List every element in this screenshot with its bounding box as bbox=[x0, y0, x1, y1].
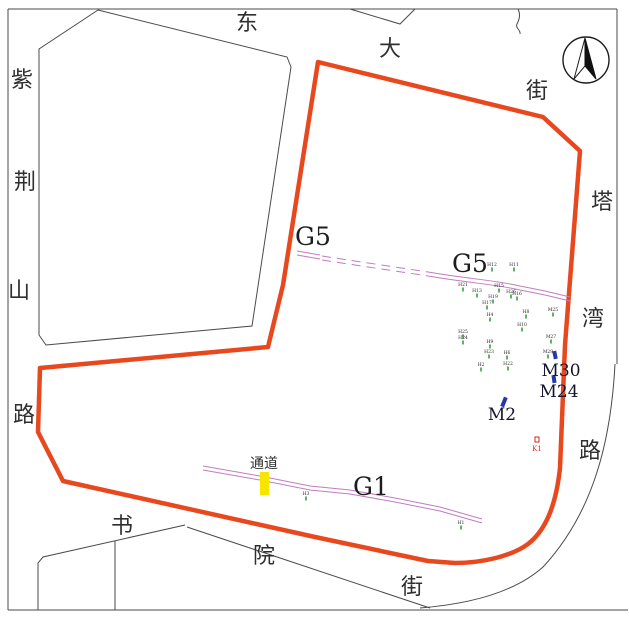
street-right-char: 塔 bbox=[591, 190, 613, 215]
trench-g5-seg bbox=[297, 251, 320, 255]
feature-marker-label: H17 bbox=[482, 300, 492, 306]
feature-marker-label: H15 bbox=[494, 283, 504, 289]
feature-marker-label: H22 bbox=[503, 361, 513, 367]
trench-g5-seg bbox=[297, 255, 320, 259]
building-block-topleft bbox=[39, 10, 291, 345]
trench-g1-line bbox=[203, 466, 482, 523]
feature-marker-tick bbox=[489, 345, 491, 349]
feature-marker-tick bbox=[498, 289, 500, 293]
street-bottom-char: 院 bbox=[253, 544, 275, 569]
trench-g5-label-left: G5 bbox=[295, 222, 331, 251]
street-bottom-char: 街 bbox=[401, 575, 423, 600]
north-arrow-icon bbox=[563, 37, 609, 83]
feature-marker-tick bbox=[305, 497, 307, 501]
compass-needle-left bbox=[574, 38, 585, 79]
feature-marker-tick bbox=[460, 526, 462, 530]
feature-marker-label: H11 bbox=[509, 262, 519, 268]
feature-marker-label: H16 bbox=[512, 291, 522, 297]
road-stub-top bbox=[517, 9, 521, 34]
trench-g5-dashed-seg bbox=[322, 260, 428, 276]
feature-marker-label: H24 bbox=[458, 335, 468, 341]
trench-g1-seg bbox=[203, 470, 482, 523]
feature-marker-label: M27 bbox=[546, 334, 556, 340]
feature-marker-label: H19 bbox=[488, 294, 498, 300]
feature-marker-tick bbox=[486, 306, 488, 310]
street-right-char: 湾 bbox=[582, 307, 604, 332]
feature-marker-tick bbox=[513, 268, 515, 272]
feature-marker-label: M25 bbox=[548, 307, 558, 313]
feature-marker-label: H23 bbox=[484, 349, 494, 355]
feature-marker-label: H3 bbox=[303, 491, 310, 497]
feature-marker-tick bbox=[462, 288, 464, 292]
feature-marker-tick bbox=[547, 355, 549, 359]
feature-marker-tick bbox=[516, 297, 518, 301]
street-left-char: 路 bbox=[13, 403, 35, 428]
feature-marker-tick bbox=[507, 367, 509, 371]
feature-marker-label: H4 bbox=[487, 312, 494, 318]
feature-marker-tick bbox=[552, 313, 554, 317]
trench-g1-label: G1 bbox=[353, 472, 389, 501]
trench-g5-line bbox=[297, 251, 570, 301]
site-map: 通道 G5 G5 G1 M30 M24 M2 K1 东 大 街 紫 荆 山 路 … bbox=[0, 0, 629, 618]
feature-marker-label: H12 bbox=[487, 262, 497, 268]
feature-marker-tick bbox=[525, 315, 527, 319]
passage-label: 通道 bbox=[250, 456, 278, 472]
feature-marker-label: H25 bbox=[458, 329, 468, 335]
tomb-m30-label: M30 bbox=[541, 361, 580, 381]
feature-marker-tick bbox=[488, 355, 490, 359]
feature-marker-label: H1 bbox=[458, 520, 465, 526]
feature-marker-tick bbox=[521, 328, 523, 332]
feature-marker-label: H9 bbox=[487, 339, 494, 345]
street-top-char: 街 bbox=[526, 79, 548, 104]
tomb-m2-label: M2 bbox=[488, 405, 516, 425]
feature-marker-label: M29 bbox=[543, 349, 553, 355]
street-left-char: 山 bbox=[8, 279, 30, 304]
building-edge-topright bbox=[350, 9, 415, 24]
feature-marker-tick bbox=[462, 341, 464, 345]
site-map-canvas: 通道 G5 G5 G1 M30 M24 M2 K1 东 大 街 紫 荆 山 路 … bbox=[0, 0, 629, 618]
tomb-m24-label: M24 bbox=[539, 382, 578, 402]
kiln-k1-marker bbox=[535, 437, 539, 442]
feature-marker-tick bbox=[491, 268, 493, 272]
feature-marker-label: H21 bbox=[458, 282, 468, 288]
feature-marker-label: H2 bbox=[478, 362, 485, 368]
trench-g5-label-mid: G5 bbox=[452, 249, 488, 278]
feature-marker-label: H13 bbox=[472, 288, 482, 294]
street-left-char: 荆 bbox=[14, 170, 36, 195]
compass-needle-right bbox=[585, 38, 596, 79]
street-right-char: 路 bbox=[579, 439, 601, 464]
feature-marker-label: H6 bbox=[504, 350, 511, 356]
feature-marker-tick bbox=[550, 340, 552, 344]
feature-marker-label: H10 bbox=[517, 322, 527, 328]
street-south-edge bbox=[187, 527, 430, 608]
excavation-boundary-outline bbox=[38, 62, 580, 563]
street-left-char: 紫 bbox=[11, 68, 33, 93]
feature-marker-tick bbox=[476, 294, 478, 298]
passage-marker bbox=[260, 472, 269, 495]
trench-g5-dashed-seg bbox=[322, 256, 428, 272]
feature-marker-label: H8 bbox=[523, 309, 530, 315]
feature-marker-tick bbox=[480, 368, 482, 372]
road-curve-bottomright bbox=[420, 364, 615, 608]
street-top-char: 东 bbox=[236, 11, 258, 36]
feature-marker-tick bbox=[506, 356, 508, 360]
street-bottom-char: 书 bbox=[111, 514, 133, 539]
feature-marker-tick bbox=[489, 318, 491, 322]
feature-marker-tick bbox=[492, 300, 494, 304]
kiln-k1-label: K1 bbox=[532, 445, 542, 453]
street-top-char: 大 bbox=[379, 37, 401, 62]
